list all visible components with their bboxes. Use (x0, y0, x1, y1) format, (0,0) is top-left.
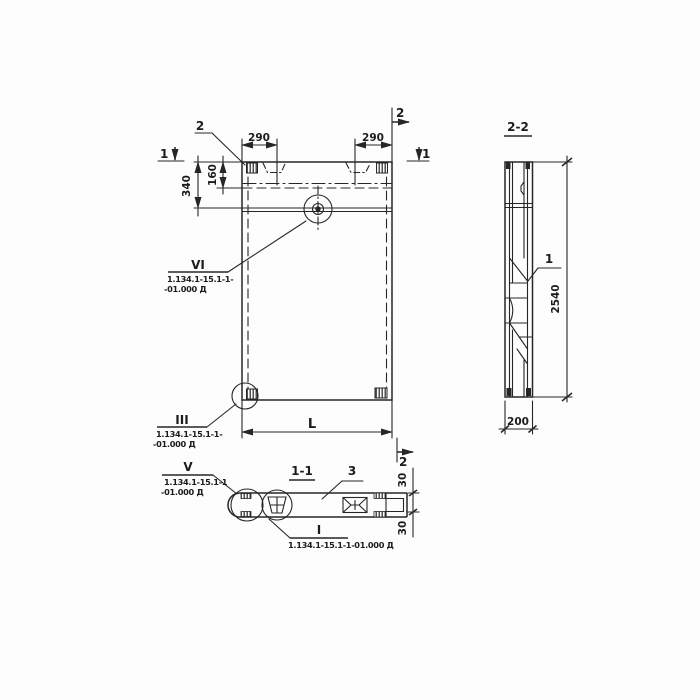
dim-340-label: 340 (181, 175, 193, 197)
cut-mark-1-right: 1 (407, 147, 430, 161)
detail-iii-ref2: -01.000 Д (153, 439, 195, 449)
section-1-1-view: 1-1 3 (161, 460, 419, 550)
technical-drawing: 340 160 290 290 2 2 (0, 0, 700, 700)
detail-vi-ref1: 1.134.1-15.1-1- (167, 274, 233, 284)
detail-circle-vi (228, 186, 332, 272)
detail-v-numeral: V (183, 460, 193, 474)
detail-iii-ref1: 1.134.1-15.1-1- (156, 429, 222, 439)
dim-L: L (242, 400, 392, 438)
cut-2-top-label: 2 (396, 106, 404, 120)
drawing-sheet: 340 160 290 290 2 2 (0, 0, 700, 700)
cut-mark-2-top: 2 (392, 106, 409, 162)
dim-200: 200 (499, 401, 538, 434)
dim-2540-label: 2540 (550, 284, 562, 313)
cut-mark-2-bottom: 2 (397, 438, 413, 469)
dim-290-left: 290 (242, 132, 277, 185)
cut-2-bottom-label: 2 (399, 455, 407, 469)
detail-vi-ref2: -01.000 Д (164, 284, 206, 294)
section-2-2-title-text: 2-2 (507, 120, 529, 134)
detail-v-ref2: -01.000 Д (161, 487, 203, 497)
panel-outline (242, 162, 392, 400)
detail-vi-numeral: VI (191, 258, 205, 272)
detail-label-vi: VI 1.134.1-15.1-1- -01.000 Д (164, 258, 233, 294)
dim-30-bottom-label: 30 (397, 521, 409, 536)
dim-290-left-label: 290 (248, 132, 270, 144)
cut-1-left-label: 1 (160, 147, 168, 161)
section-2-2-view: 2-2 (499, 120, 572, 434)
dim-160-label: 160 (207, 164, 219, 186)
leader-2: 2 (195, 119, 245, 165)
detail-iii-numeral: III (175, 413, 188, 427)
cut-mark-1-left: 1 (158, 147, 184, 161)
cut-1-right-label: 1 (422, 147, 430, 161)
part-3-label: 3 (348, 464, 356, 478)
detail-i-numeral: I (317, 523, 321, 537)
section-1-1-title-text: 1-1 (291, 464, 313, 478)
dim-340: 340 (181, 156, 198, 216)
dim-2540: 2540 (533, 156, 573, 402)
part-1-label: 1 (545, 252, 553, 266)
section-2-2-title: 2-2 (504, 120, 532, 136)
detail-circle-v (231, 489, 263, 521)
dim-30-group: 30 30 (397, 468, 419, 537)
section-2-2-body (505, 162, 533, 397)
embedded-plates (247, 163, 388, 399)
dim-290-right-label: 290 (362, 132, 384, 144)
detail-v-ref1: 1.134.1-15.1-1 (164, 477, 228, 487)
detail-circle-i (262, 490, 292, 520)
elevation-view: 340 160 290 290 2 2 (153, 106, 430, 469)
section-1-1-title: 1-1 (289, 464, 315, 480)
detail-label-iii: III 1.134.1-15.1-1- -01.000 Д (153, 413, 222, 449)
detail-i-ref: 1.134.1-15.1-1-01.000 Д (288, 540, 394, 550)
dim-200-label: 200 (507, 416, 529, 428)
detail-label-v: V 1.134.1-15.1-1 -01.000 Д (161, 460, 237, 497)
leader-2-label: 2 (196, 119, 204, 133)
section-1-1-body (228, 493, 407, 517)
dim-30-top-label: 30 (397, 473, 409, 488)
dim-L-label: L (308, 417, 316, 432)
detail-label-i: I 1.134.1-15.1-1-01.000 Д (269, 519, 394, 550)
